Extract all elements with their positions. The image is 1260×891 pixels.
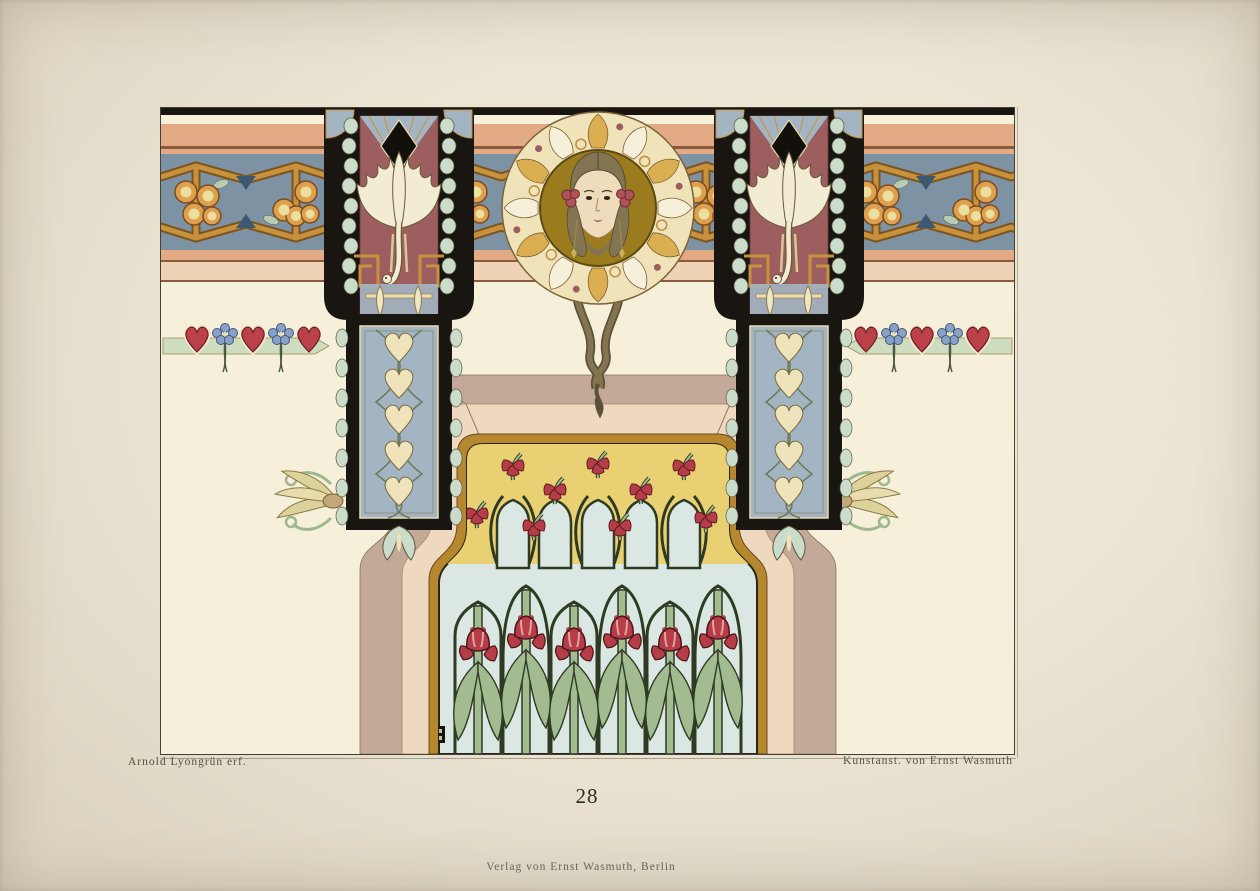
palmette-ornament-left — [275, 465, 343, 529]
swan-pilaster-left — [324, 108, 474, 560]
plate-number: 28 — [576, 784, 599, 809]
flower-heart-band-left — [163, 324, 329, 373]
book-page: Arnold Lyongrün erf. Kunstanst. von Erns… — [0, 0, 1260, 891]
designer-credit: Arnold Lyongrün erf. — [128, 756, 247, 768]
artwork-plate — [160, 107, 1015, 755]
plate-rule-right — [1017, 107, 1018, 758]
publisher-line: Verlag von Ernst Wasmuth, Berlin — [486, 861, 676, 873]
artwork-illustration — [161, 108, 1014, 754]
flower-heart-band-right — [846, 324, 1012, 373]
medallion — [502, 112, 694, 414]
swan-pilaster-right — [714, 108, 864, 560]
printer-credit: Kunstanst. von Ernst Wasmuth — [843, 755, 1013, 767]
